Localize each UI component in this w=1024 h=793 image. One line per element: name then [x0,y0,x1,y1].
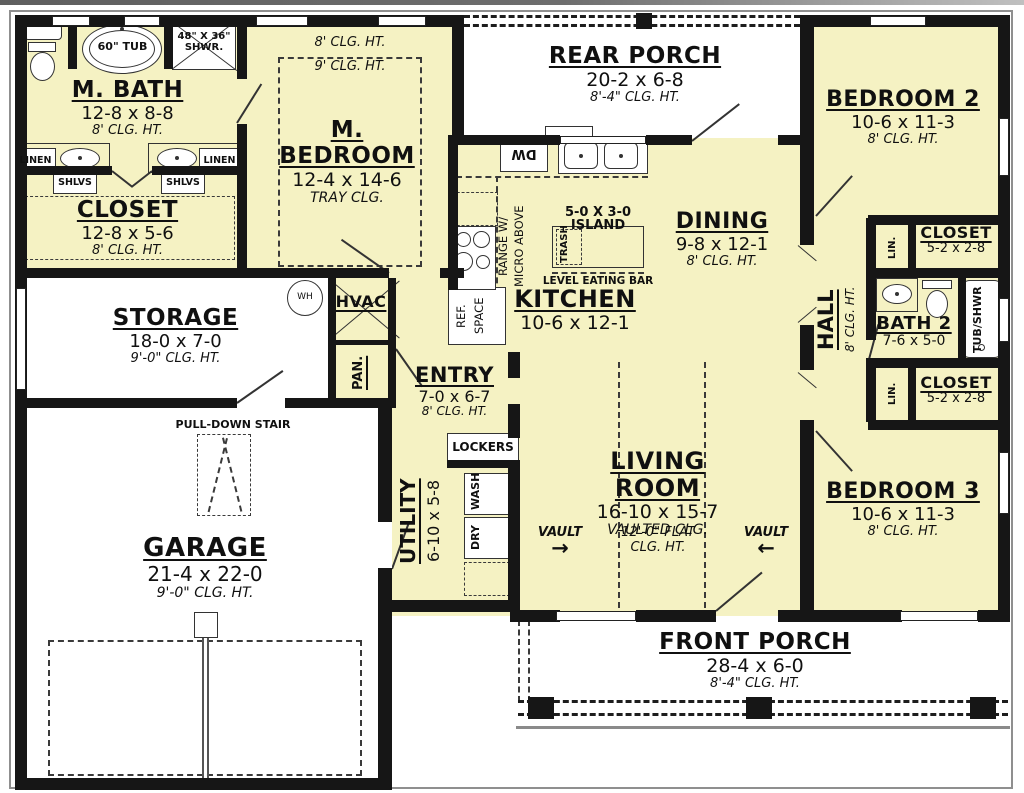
room-dims: 28-4 x 6-0 [650,656,860,677]
wall [15,268,389,278]
window [900,611,978,621]
window [124,16,160,26]
garage-door-divider [202,638,209,778]
room-ceiling: 8' CLG. HT. [808,525,998,540]
linen-closet-label: LIN. [888,371,898,417]
room-label-m-closet: CLOSET 12-8 x 5-6 8' CLG. HT. [35,198,220,258]
wall [237,124,247,278]
porch-slab-line [516,726,1010,729]
ref-space-label-line2: SPACE [474,290,486,342]
room-label-m-bath: M. BATH 12-8 x 8-8 8' CLG. HT. [35,78,220,138]
room-title: BEDROOM 3 [808,480,998,505]
front-porch-edge-left [518,620,520,702]
vault-label-right: VAULT ← [736,526,796,556]
room-ceiling: 9'-0" CLG. HT. [115,586,295,602]
room-label-garage: GARAGE 21-4 x 22-0 9'-0" CLG. HT. [115,534,295,601]
window [560,136,646,144]
room-dims: 5-2 x 2-8 [906,242,1006,257]
flat-ceiling-label: 12'-0" FLAT CLG. HT. [612,526,704,555]
porch-post [528,697,554,719]
window [556,611,636,621]
sink-drain-dot [579,154,583,158]
burner [456,232,471,247]
wall [378,600,520,612]
burner [473,231,490,248]
eating-bar-label: LEVEL EATING BAR [540,276,656,287]
room-dims: 10-6 x 11-3 [808,505,998,525]
window [870,16,926,26]
top-gray-bar [0,0,1024,5]
utility-dims-label: 6-10 x 5-8 [426,462,442,580]
window [52,16,90,26]
sink-drain-dot [619,154,623,158]
toilet-tank [28,42,56,52]
room-label-bath2: BATH 2 7-6 x 5-0 [872,314,956,350]
burner [476,255,490,269]
room-label-closet-bottom: CLOSET 5-2 x 2-8 [906,374,1006,406]
garage-center-post [194,612,218,638]
room-label-bedroom3: BEDROOM 3 10-6 x 11-3 8' CLG. HT. [808,480,998,539]
room-label-front-porch: FRONT PORCH 28-4 x 6-0 8'-4" CLG. HT. [650,630,860,692]
room-ceiling: 8' CLG. HT. [808,133,998,148]
dryer-label: DRY [470,522,481,554]
room-title: CLOSET [906,374,1006,392]
wall [448,135,458,290]
room-dims: 18-0 x 7-0 [88,332,263,352]
window [999,298,1009,342]
room-title: LIVING ROOM [570,448,745,502]
tub-faucet-dot [120,27,124,31]
window [256,16,308,26]
vault-arrow-left-icon: ← [736,541,796,557]
room-ceiling: 8'-4" CLG. HT. [535,91,735,106]
front-porch-edge-left [528,620,530,702]
wall [866,218,876,274]
tray-inner-clg-label: 9' CLG. HT. [295,60,405,75]
window [999,452,1009,514]
wall [978,610,1010,622]
room-ceiling: 8' CLG. HT. [392,405,517,418]
room-title: DINING [652,210,792,235]
linen-label: LINEN [16,156,55,166]
room-ceiling: 8' CLG. HT. [652,255,792,270]
tub-label: 60" TUB [95,41,150,52]
room-ceiling: 8' CLG. HT. [35,244,220,259]
porch-post [636,13,652,29]
sink-drain-dot [78,156,82,160]
room-dims: 7-0 x 6-7 [392,388,517,406]
wall [452,15,464,145]
toilet-tank [922,280,952,289]
door-opening [378,522,392,568]
room-label-bedroom2: BEDROOM 2 10-6 x 11-3 8' CLG. HT. [808,88,998,147]
wall [866,368,876,422]
shower-label-line2: SHWR. [175,42,233,53]
wall [866,358,1010,368]
wall [510,610,560,622]
wall [508,460,520,612]
room-title: M. BEDROOM [262,118,432,170]
wall [15,166,112,175]
washer-label: WASH [470,478,481,510]
window [16,288,26,390]
linen-closet-label: LIN. [888,226,898,270]
tray-outer-clg-label: 8' CLG. HT. [295,36,405,51]
wall [328,400,396,408]
vault-label-left: VAULT → [530,526,590,556]
shelves-label: SHLVS [54,178,96,188]
counter-edge-dashed [456,176,648,178]
room-ceiling: TRAY CLG. [262,191,432,207]
trash-label: TRASH [560,231,570,263]
hall-ceiling-label: 8' CLG. HT. [844,272,856,367]
flat-ceiling-line1: 12'-0" FLAT [612,526,704,541]
room-dims: 21-4 x 22-0 [115,563,295,585]
hall-label: HALL [816,272,837,367]
room-title: STORAGE [88,306,263,332]
wall [636,610,716,622]
room-dims: 5-2 x 2-8 [906,392,1006,407]
wall [152,166,240,175]
range-label-line1: RANGE W/ [498,196,510,296]
room-label-closet-top: CLOSET 5-2 x 2-8 [906,224,1006,256]
wall [646,135,692,145]
room-dims: 9-8 x 12-1 [652,235,792,255]
pantry-label: PAN. [352,348,365,398]
room-ceiling: 8' CLG. HT. [35,124,220,139]
room-title: CLOSET [906,224,1006,242]
ref-space-label-line1: REF. [456,294,468,338]
floor-plan: PULL-DOWN STAIR M. BATH 12-8 x 8-8 8' CL… [0,0,1024,793]
wall [15,778,392,790]
room-dims: 12-8 x 8-8 [35,104,220,124]
room-dims: 12-8 x 5-6 [35,224,220,244]
room-dims: 12-4 x 14-6 [262,170,432,191]
room-ceiling: 8'-4" CLG. HT. [650,677,860,692]
linen-label: LINEN [200,156,239,166]
wall [868,420,1010,430]
pull-down-stair-label: PULL-DOWN STAIR [168,419,298,430]
room-title: BATH 2 [872,314,956,334]
room-title: GARAGE [115,534,295,563]
lockers-label: LOCKERS [449,441,517,453]
wall [778,610,902,622]
wall [800,325,814,370]
room-dims: 20-2 x 6-8 [535,70,735,91]
room-dims: 16-10 x 15-7 [570,502,745,523]
room-label-m-bedroom: M. BEDROOM 12-4 x 14-6 TRAY CLG. [262,118,432,206]
room-label-rear-porch: REAR PORCH 20-2 x 6-8 8'-4" CLG. HT. [535,44,735,106]
porch-post [970,697,996,719]
room-title: CLOSET [35,198,220,224]
utility-counter-dashed [464,562,510,596]
eating-bar-dashed [552,272,644,274]
wall [164,15,173,69]
room-ceiling: 9'-0" CLG. HT. [88,352,263,367]
room-label-storage: STORAGE 18-0 x 7-0 9'-0" CLG. HT. [88,306,263,366]
room-label-entry: ENTRY 7-0 x 6-7 8' CLG. HT. [392,364,517,419]
room-label-dining: DINING 9-8 x 12-1 8' CLG. HT. [652,210,792,269]
room-title: BEDROOM 2 [808,88,998,113]
tub-shower-label: TUB/SHWR [972,284,983,356]
rear-porch-edge [464,15,800,27]
wall [958,278,966,362]
wall [778,135,812,145]
vault-arrow-right-icon: → [530,541,590,557]
shelves-label: SHLVS [162,178,204,188]
island-label: 5-0 X 3-0 ISLAND [538,206,658,232]
sink-drain-dot [175,156,179,160]
dishwasher-label: DW [504,147,544,160]
flat-ceiling-line2: CLG. HT. [612,541,704,556]
room-title: ENTRY [392,364,517,388]
room-dims: 7-6 x 5-0 [872,334,956,350]
toilet-icon [30,52,55,81]
sink-drain-dot [895,292,899,296]
room-title: M. BATH [35,78,220,104]
wall [330,340,394,345]
window [378,16,426,26]
wall [452,135,560,145]
wall [237,15,247,79]
water-heater-label: WH [289,293,321,302]
wall [378,398,392,790]
wall [15,398,237,408]
room-title: FRONT PORCH [650,630,860,656]
room-dims: 10-6 x 12-1 [490,313,660,334]
wall [800,225,814,245]
utility-label: UTILITY [398,462,418,580]
porch-post [746,697,772,719]
range-label-line2: MICRO ABOVE [514,190,526,302]
hvac-label: HVAC [330,294,392,310]
window [999,118,1009,176]
shower-label-line1: 48" X 36" [175,31,233,42]
room-dims: 10-6 x 11-3 [808,113,998,133]
microwave-dashed [452,192,498,226]
shower-label: 48" X 36" SHWR. [175,31,233,53]
room-title: REAR PORCH [535,44,735,70]
